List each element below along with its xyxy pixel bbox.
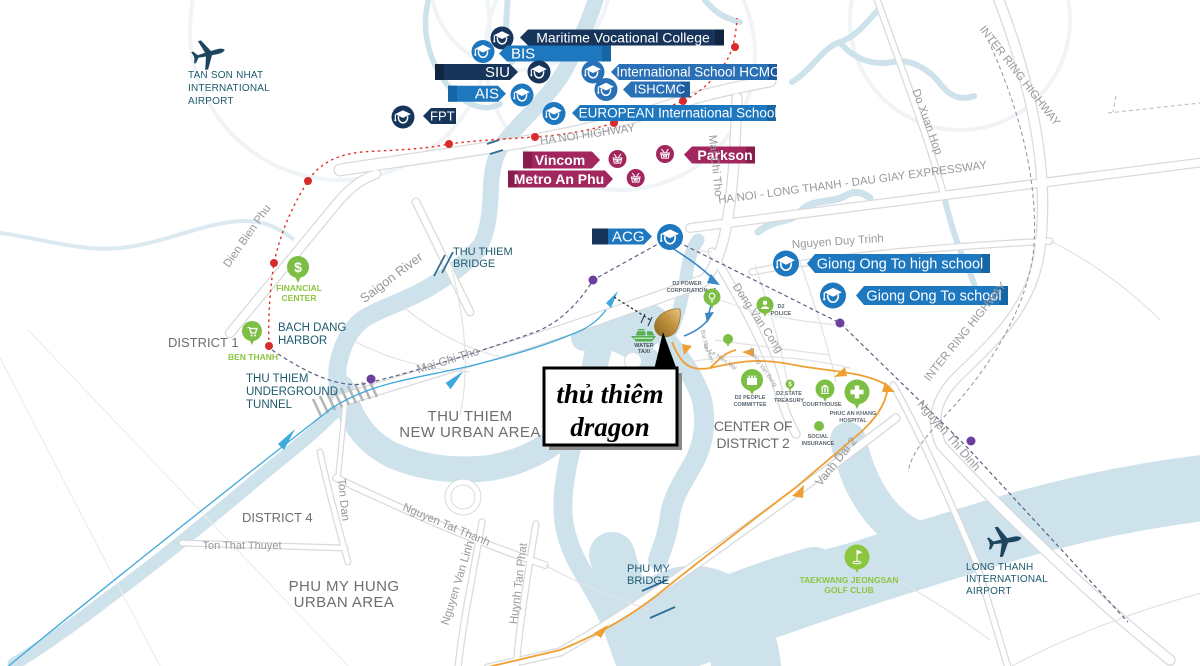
svg-text:INSURANCE: INSURANCE bbox=[802, 441, 835, 447]
svg-text:SIU: SIU bbox=[485, 64, 510, 81]
svg-text:TAXI: TAXI bbox=[638, 349, 651, 355]
svg-text:UNDERGROUND: UNDERGROUND bbox=[246, 386, 338, 398]
svg-text:THU THIEM: THU THIEM bbox=[428, 408, 513, 425]
svg-text:FPT: FPT bbox=[430, 109, 455, 124]
svg-text:CORPORATION: CORPORATION bbox=[667, 288, 708, 294]
svg-text:INTERNATIONAL: INTERNATIONAL bbox=[966, 574, 1048, 585]
svg-text:AIRPORT: AIRPORT bbox=[188, 96, 234, 107]
svg-text:Parkson: Parkson bbox=[697, 147, 752, 163]
svg-text:D2 POWER: D2 POWER bbox=[672, 281, 701, 287]
svg-text:AIS: AIS bbox=[475, 86, 499, 103]
svg-text:EUROPEAN International School: EUROPEAN International School bbox=[579, 106, 778, 121]
svg-text:BACH DANG: BACH DANG bbox=[278, 322, 346, 334]
svg-text:TREASURY: TREASURY bbox=[774, 398, 804, 404]
svg-text:DISTRICT 4: DISTRICT 4 bbox=[242, 510, 313, 525]
svg-text:International School HCMC: International School HCMC bbox=[616, 65, 780, 80]
svg-text:SOCIAL: SOCIAL bbox=[808, 434, 829, 440]
svg-text:THU THIEM: THU THIEM bbox=[453, 246, 513, 258]
svg-text:NEW URBAN AREA: NEW URBAN AREA bbox=[399, 424, 540, 441]
svg-text:URBAN AREA: URBAN AREA bbox=[294, 594, 395, 611]
svg-text:TAEKWANG JEONGSAN: TAEKWANG JEONGSAN bbox=[799, 575, 898, 585]
svg-text:HOSPITAL: HOSPITAL bbox=[839, 418, 867, 424]
svg-text:Ton That Thuyet: Ton That Thuyet bbox=[202, 540, 281, 552]
svg-text:Vincom: Vincom bbox=[535, 152, 585, 168]
svg-text:TAN SON NHAT: TAN SON NHAT bbox=[188, 70, 263, 81]
svg-text:POLICE: POLICE bbox=[771, 311, 792, 317]
svg-text:PHUC AN KHANG: PHUC AN KHANG bbox=[830, 411, 877, 417]
svg-text:thủ thiêm: thủ thiêm bbox=[556, 379, 663, 409]
svg-text:BRIDGE: BRIDGE bbox=[453, 258, 495, 270]
svg-text:TUNNEL: TUNNEL bbox=[246, 399, 293, 411]
svg-text:DISTRICT 1: DISTRICT 1 bbox=[168, 335, 239, 350]
svg-text:COMMITTEE: COMMITTEE bbox=[734, 402, 767, 408]
svg-text:BRIDGE: BRIDGE bbox=[627, 575, 669, 587]
svg-text:GOLF CLUB: GOLF CLUB bbox=[824, 585, 874, 595]
svg-text:CENTER OF: CENTER OF bbox=[714, 418, 792, 434]
svg-text:dragon: dragon bbox=[570, 412, 650, 442]
svg-text:PHU MY HUNG: PHU MY HUNG bbox=[289, 578, 400, 595]
svg-text:Metro An Phu: Metro An Phu bbox=[514, 171, 604, 187]
svg-text:COURTHOUSE: COURTHOUSE bbox=[802, 402, 841, 408]
svg-text:DISTRICT 2: DISTRICT 2 bbox=[717, 435, 790, 451]
svg-text:LONG THANH: LONG THANH bbox=[966, 562, 1033, 573]
svg-text:BIS: BIS bbox=[511, 46, 535, 63]
svg-text:D2: D2 bbox=[777, 304, 784, 310]
svg-text:INTERNATIONAL: INTERNATIONAL bbox=[188, 83, 270, 94]
svg-text:HARBOR: HARBOR bbox=[278, 335, 327, 347]
svg-text:ISHCMC: ISHCMC bbox=[634, 82, 685, 97]
svg-text:$: $ bbox=[294, 259, 302, 275]
svg-text:FINANCIAL: FINANCIAL bbox=[276, 283, 322, 293]
svg-text:ACG: ACG bbox=[612, 229, 645, 246]
svg-text:Maritime Vocational College: Maritime Vocational College bbox=[536, 30, 710, 46]
svg-text:PHU MY: PHU MY bbox=[627, 563, 670, 575]
svg-text:Giong Ong To high school: Giong Ong To high school bbox=[817, 257, 984, 273]
svg-text:BEN THANH: BEN THANH bbox=[228, 352, 278, 362]
svg-text:CENTER: CENTER bbox=[282, 293, 317, 303]
svg-text:D2 PEOPLE: D2 PEOPLE bbox=[735, 395, 766, 401]
svg-text:THU THIEM: THU THIEM bbox=[246, 373, 308, 385]
svg-text:D2 STATE: D2 STATE bbox=[776, 391, 802, 397]
svg-text:AIRPORT: AIRPORT bbox=[966, 586, 1012, 597]
